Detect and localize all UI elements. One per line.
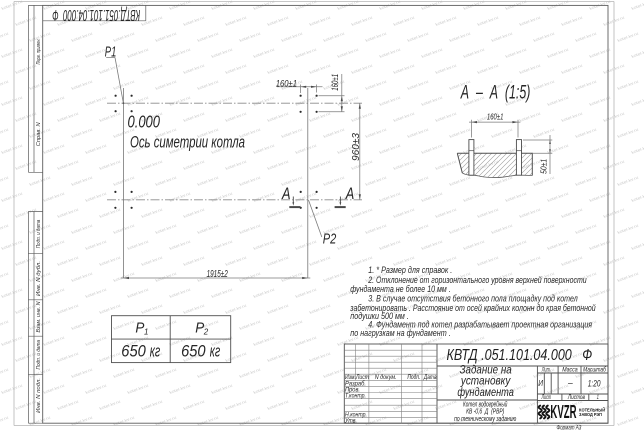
svg-text:Подп. и дата: Подп. и дата: [36, 340, 42, 370]
svg-text:160±1: 160±1: [276, 78, 297, 89]
svg-text:Масштаб: Масштаб: [583, 367, 606, 374]
svg-text:A: A: [345, 184, 354, 203]
svg-text:1915±2: 1915±2: [207, 269, 229, 280]
svg-text:Лит.: Лит.: [541, 367, 551, 374]
svg-text:КВТД .051.101.04.000 Ф: КВТД .051.101.04.000 Ф: [447, 347, 593, 364]
svg-text:Подп.: Подп.: [407, 374, 420, 381]
svg-text:кг: кг: [150, 342, 161, 361]
svg-text:Листов: Листов: [567, 394, 585, 401]
svg-text:P2: P2: [323, 232, 337, 248]
svg-text:1:20: 1:20: [588, 378, 601, 388]
svg-text:Дата: Дата: [423, 374, 437, 381]
svg-text:1: 1: [144, 328, 148, 337]
svg-text:50±1: 50±1: [540, 159, 549, 174]
svg-text:ЗАВОД РЭП: ЗАВОД РЭП: [579, 412, 602, 418]
svg-text:–: –: [567, 377, 573, 387]
svg-text:И: И: [538, 379, 543, 388]
svg-text:650: 650: [121, 342, 146, 361]
svg-text:КВТД.051.101.04.000 Ф: КВТД.051.101.04.000 Ф: [52, 6, 140, 23]
svg-text:Перв. примен.: Перв. примен.: [36, 39, 42, 65]
svg-text:160±1: 160±1: [330, 74, 341, 91]
svg-text:фундамента: фундамента: [457, 385, 514, 399]
svg-text:по нагрузкам на фундамент .: по нагрузкам на фундамент .: [350, 327, 450, 338]
svg-text:A – A (1:5): A – A (1:5): [460, 82, 530, 104]
svg-text:KVZR: KVZR: [550, 402, 576, 422]
svg-text:Инв. N подл.: Инв. N подл.: [36, 378, 42, 413]
svg-text:0.000: 0.000: [128, 112, 161, 132]
svg-text:Т.контр.: Т.контр.: [345, 393, 366, 400]
svg-text:Ось симетрии котла: Ось симетрии котла: [130, 134, 245, 152]
svg-text:по техническому заданию: по техническому заданию: [454, 414, 516, 423]
svg-text:N докум.: N докум.: [375, 374, 397, 381]
svg-text:Формат А3: Формат А3: [557, 425, 582, 430]
svg-text:960±3: 960±3: [351, 132, 362, 161]
svg-text:1: 1: [597, 394, 599, 401]
svg-text:Инв. N дубл.: Инв. N дубл.: [36, 261, 42, 296]
svg-text:650: 650: [181, 342, 206, 361]
svg-text:Взам. инв. N: Взам. инв. N: [36, 301, 42, 332]
svg-text:160±1: 160±1: [487, 111, 504, 121]
svg-text:Утв.: Утв.: [344, 417, 357, 424]
svg-text:Подп. и дата: Подп. и дата: [36, 220, 42, 249]
svg-text:кг: кг: [210, 342, 221, 361]
svg-text:P1: P1: [105, 45, 117, 61]
svg-text:A: A: [281, 184, 290, 203]
svg-text:Справ. N: Справ. N: [36, 122, 42, 146]
svg-text:2: 2: [203, 328, 209, 337]
svg-text:Лист: Лист: [541, 394, 551, 401]
svg-text:Масса: Масса: [562, 367, 578, 374]
